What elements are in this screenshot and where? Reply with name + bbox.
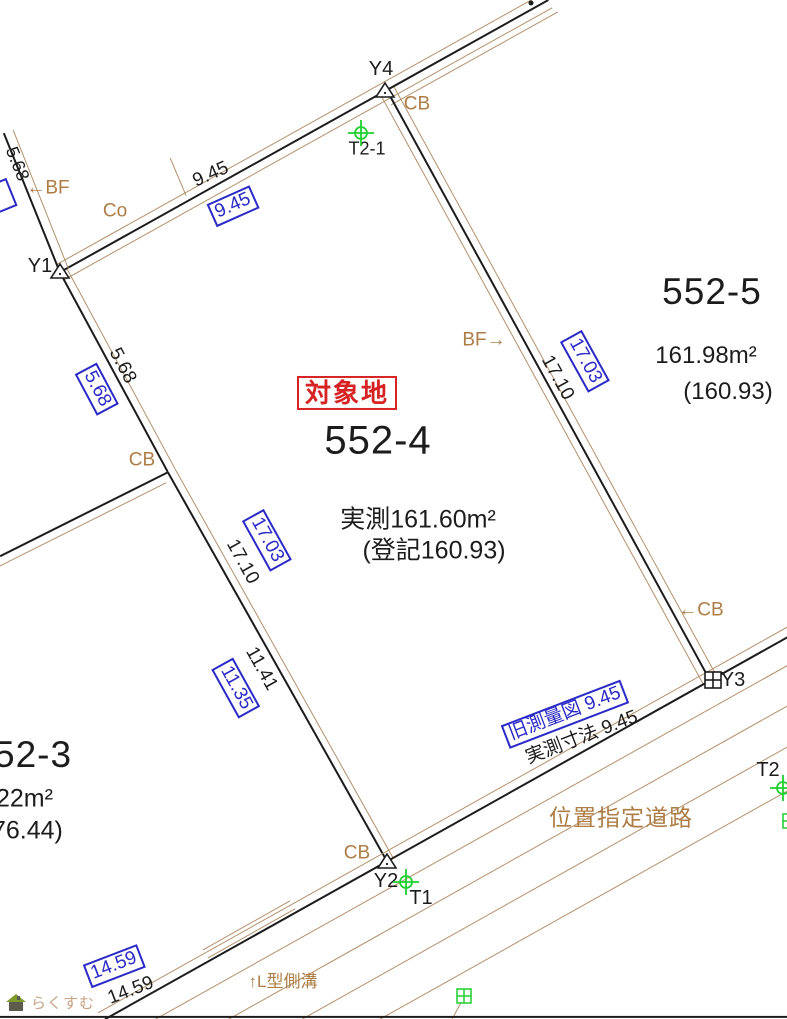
dim-9-45-top-boxed: 9.45 (207, 185, 260, 227)
survey-point-y4-triangle (374, 81, 396, 99)
subject-registered-area: (登記160.93) (362, 538, 505, 565)
fence-tick (169, 158, 186, 197)
rakusumu-logo: らくすむ (5, 992, 95, 1013)
utility-square-green-edge (781, 812, 787, 830)
east-boundary-brown-left (379, 94, 703, 685)
survey-point-y2-triangle (376, 852, 398, 870)
logo-text: らくすむ (31, 992, 95, 1013)
branch-boundary-brown (0, 482, 166, 566)
survey-point-y3-square (703, 670, 723, 690)
point-label-y4: Y4 (369, 59, 393, 81)
point-label-y3: Y3 (721, 670, 745, 692)
top-edge-dot (529, 1, 534, 6)
parcel-552-5-area: 161.98m² (655, 343, 756, 369)
road-top-brown-lower (64, 7, 553, 280)
parcel-552-5-registered: (160.93) (683, 379, 772, 405)
parcel-552-5-number: 552-5 (662, 272, 762, 312)
parcel-552-3-area: 22m² (0, 786, 53, 813)
survey-point-t2-1-cross (348, 120, 374, 146)
utility-square-green (455, 987, 473, 1005)
survey-point-t1-cross (393, 869, 419, 895)
road-top-black (60, 0, 549, 273)
parcel-552-3-registered: 76.44) (0, 818, 63, 845)
road-top-brown-lower2 (391, 11, 559, 105)
gutter-line-2 (208, 908, 296, 958)
survey-map-canvas: Y4CBT2-15.68←BFCo9.459.45Y15.685.68CB対象地… (0, 0, 787, 1019)
gutter-line-1 (203, 900, 291, 950)
road-line-3 (292, 739, 787, 1019)
road-name: 位置指定道路 (549, 806, 693, 831)
gutter-note: ↑L型側溝 (249, 973, 318, 991)
bottom-frame (0, 1016, 787, 1018)
wall-label-cb-south: CB (344, 844, 370, 865)
wall-label-cb-west: CB (129, 451, 155, 472)
survey-point-y1-triangle (49, 262, 71, 280)
wall-label-cb-top: CB (404, 95, 430, 116)
wall-label-co: Co (103, 202, 127, 223)
branch-boundary-black (0, 471, 168, 556)
parcel-552-3-number: 52-3 (0, 735, 72, 775)
survey-point-t2-cross (770, 775, 787, 801)
subject-land-tag: 対象地 (297, 376, 397, 410)
subject-measured-area: 実測161.60m² (340, 507, 496, 534)
wall-label-bf-left: ←BF (26, 179, 69, 200)
wall-label-bf-right: BF→ (462, 331, 505, 352)
subject-parcel-number: 552-4 (324, 419, 431, 462)
dim-5-68-west: 5.68 (104, 345, 139, 387)
wall-label-cb-east: ←CB (678, 601, 723, 622)
house-icon (5, 993, 27, 1012)
